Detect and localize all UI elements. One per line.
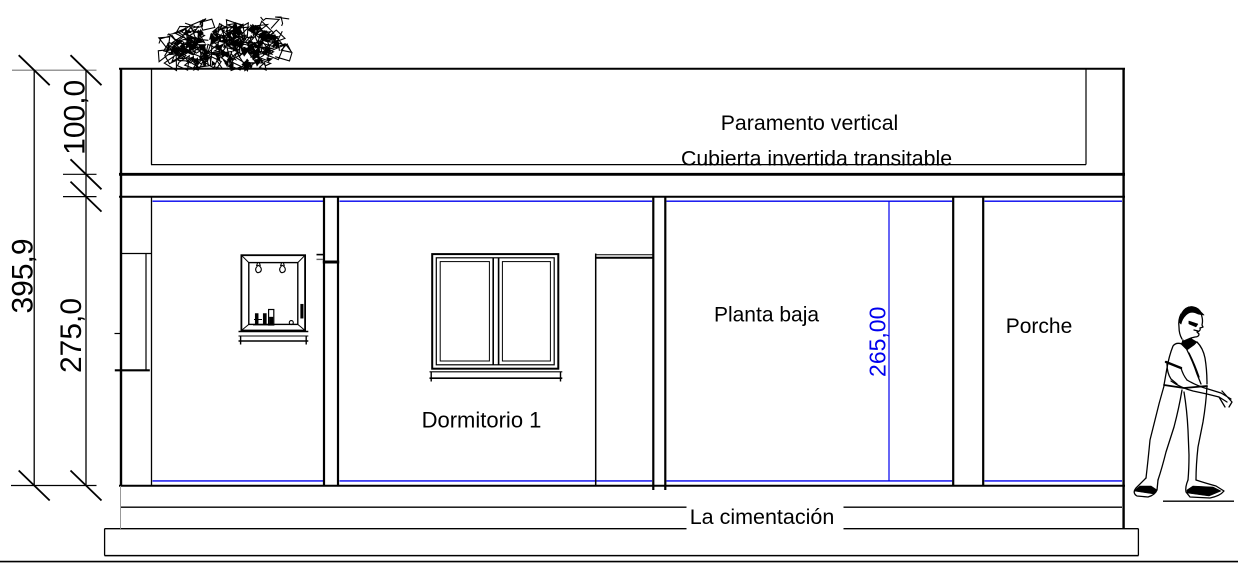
svg-text:100,0: 100,0 (59, 80, 92, 155)
svg-text:Paramento vertical: Paramento vertical (721, 111, 899, 135)
svg-text:275,0: 275,0 (55, 298, 88, 373)
svg-text:La cimentación: La cimentación (690, 505, 835, 529)
svg-text:265,00: 265,00 (865, 307, 891, 377)
svg-text:Dormitorio 1: Dormitorio 1 (422, 408, 542, 433)
svg-text:Porche: Porche (1006, 315, 1073, 338)
svg-text:395,9: 395,9 (7, 238, 40, 313)
svg-text:Cubierta invertida transitable: Cubierta invertida transitable (681, 146, 952, 170)
svg-text:Planta baja: Planta baja (714, 304, 819, 327)
